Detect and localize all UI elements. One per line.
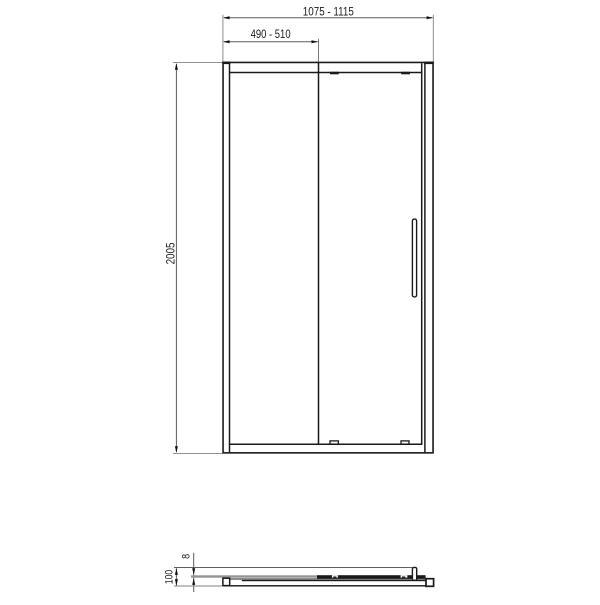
svg-text:490 - 510: 490 - 510 bbox=[251, 27, 291, 41]
svg-text:8: 8 bbox=[181, 554, 193, 559]
svg-text:2005: 2005 bbox=[164, 242, 178, 264]
svg-text:1075 - 1115: 1075 - 1115 bbox=[303, 4, 354, 18]
svg-text:100: 100 bbox=[163, 570, 175, 585]
